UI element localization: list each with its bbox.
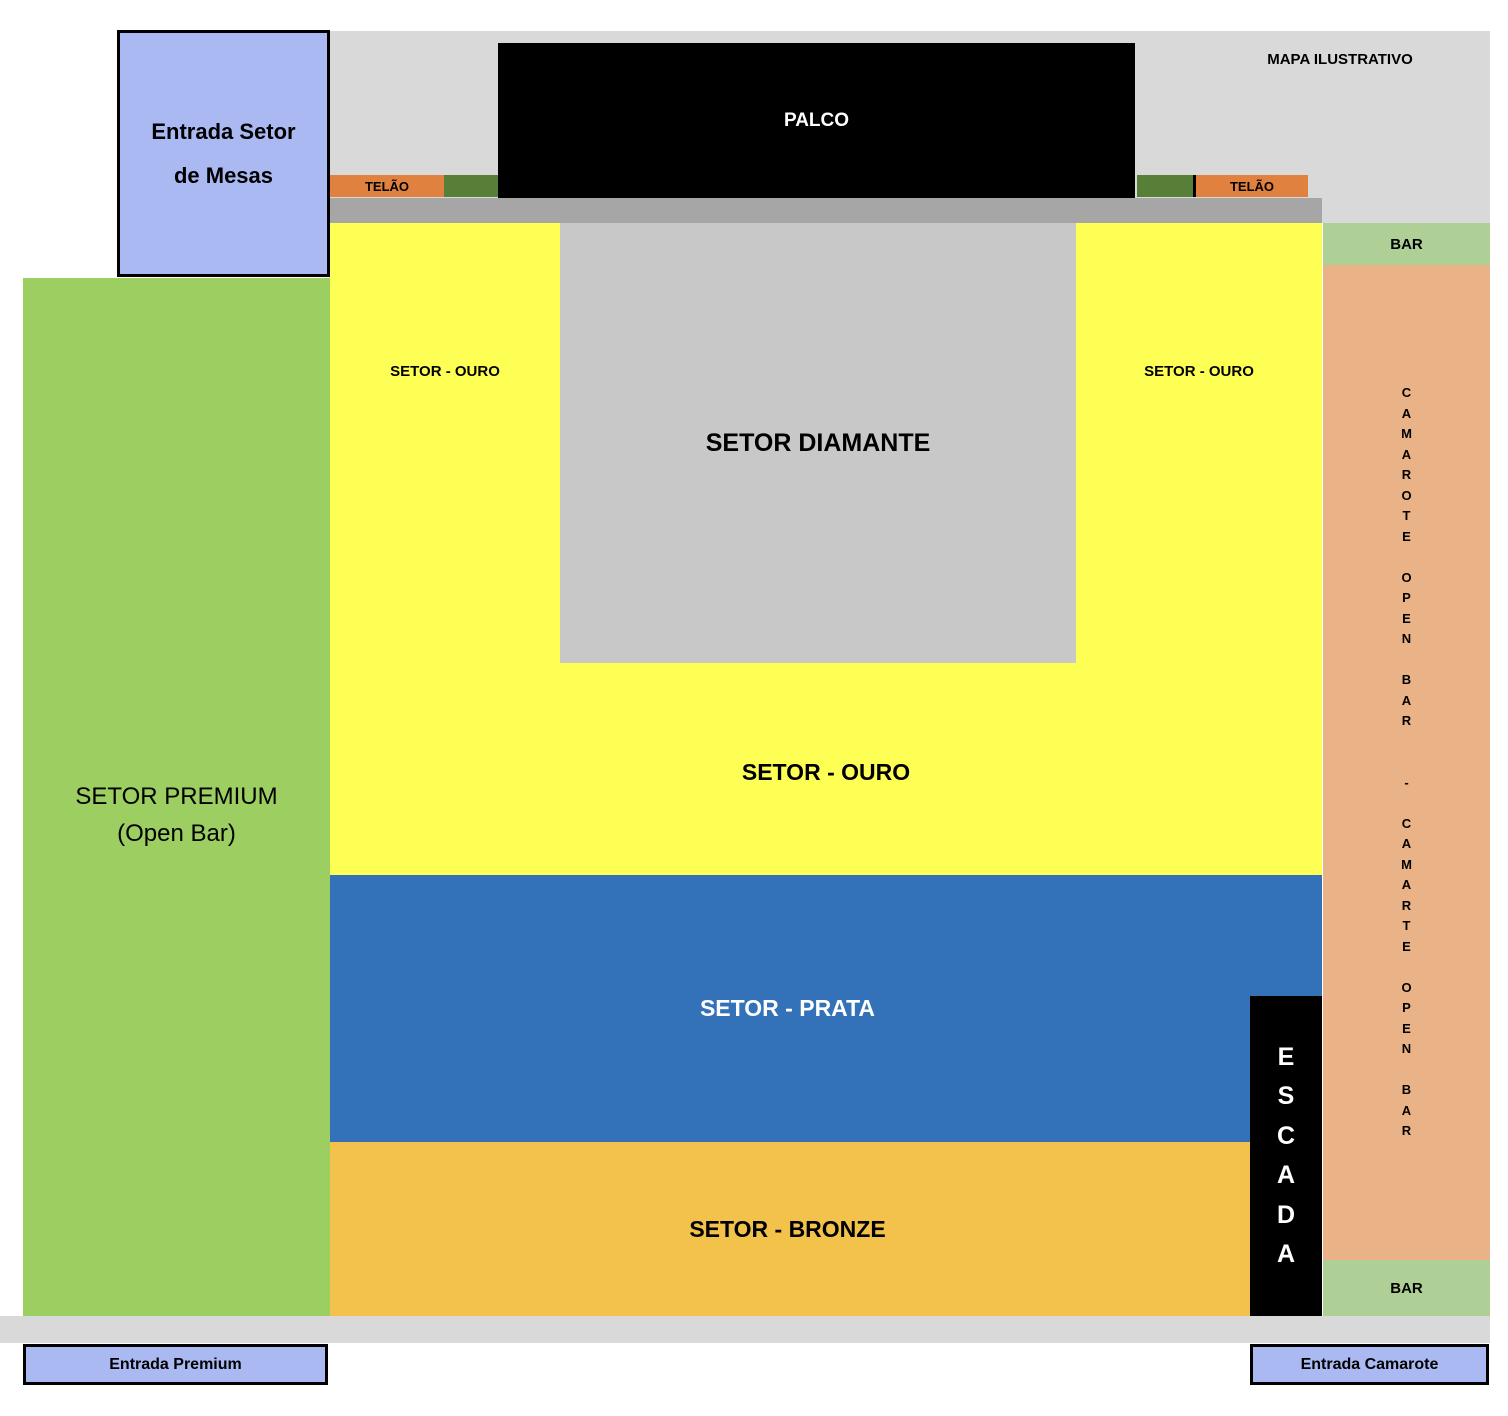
sector-ouro-left-label: SETOR - OURO — [330, 360, 560, 382]
map-title: MAPA ILUSTRATIVO — [1245, 48, 1435, 70]
sector-ouro-main-label: SETOR - OURO — [330, 695, 1322, 850]
sector-diamante-label: SETOR DIAMANTE — [706, 429, 931, 458]
entrance-camarote: Entrada Camarote — [1250, 1344, 1489, 1385]
stage-label: PALCO — [784, 110, 849, 132]
entrance-premium: Entrada Premium — [23, 1344, 328, 1385]
stairs: E S C A D A — [1250, 996, 1322, 1316]
stage: PALCO — [498, 43, 1135, 198]
sector-diamante: SETOR DIAMANTE — [560, 223, 1076, 663]
sector-prata-label: SETOR - PRATA — [330, 875, 1245, 1142]
screen-right-label: TELÃO — [1230, 179, 1274, 194]
walkway-under-stage — [330, 198, 1322, 223]
sector-premium: SETOR PREMIUM (Open Bar) — [23, 278, 330, 1316]
bar-top: BAR — [1323, 223, 1490, 265]
side-panel-right — [1137, 175, 1193, 197]
venue-map: PALCO TELÃO TELÃO MAPA ILUSTRATIVO SETOR… — [0, 0, 1508, 1416]
sector-camarote-label: C A M A R O T E O P E N B A R - C A M A … — [1401, 383, 1412, 1142]
entrance-tables: Entrada Setor de Mesas — [117, 30, 330, 277]
stairs-label: E S C A D A — [1277, 1038, 1295, 1275]
sector-bronze-label: SETOR - BRONZE — [330, 1142, 1245, 1316]
sector-ouro-right-label: SETOR - OURO — [1076, 360, 1322, 382]
bar-bottom: BAR — [1323, 1260, 1490, 1316]
screen-right: TELÃO — [1196, 175, 1308, 197]
screen-left: TELÃO — [330, 175, 444, 197]
bottom-walkway — [0, 1316, 1490, 1343]
screen-left-label: TELÃO — [365, 179, 409, 194]
sector-camarote: C A M A R O T E O P E N B A R - C A M A … — [1323, 265, 1490, 1260]
side-panel-left — [444, 175, 498, 197]
